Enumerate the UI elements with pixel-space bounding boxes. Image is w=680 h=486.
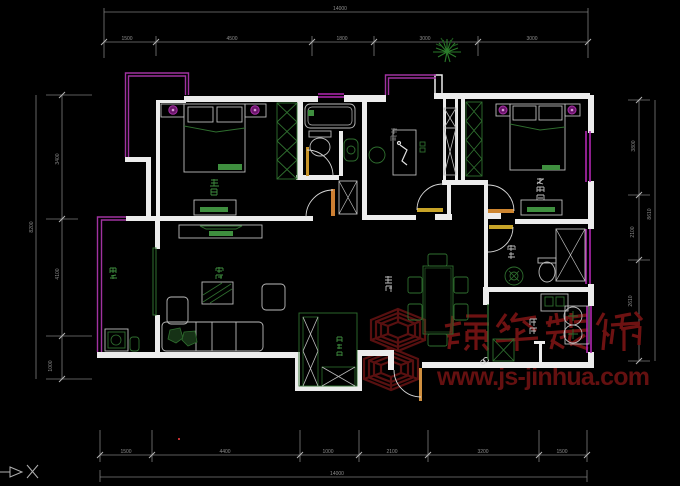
svg-text:14000: 14000 xyxy=(330,471,344,477)
svg-text:1500: 1500 xyxy=(120,449,131,455)
svg-text:2100: 2100 xyxy=(630,226,636,237)
svg-text:3000: 3000 xyxy=(419,36,430,42)
svg-text:2610: 2610 xyxy=(628,295,634,306)
svg-text:3000: 3000 xyxy=(526,36,537,42)
svg-text:4100: 4100 xyxy=(55,268,61,279)
svg-text:3800: 3800 xyxy=(631,140,637,151)
svg-text:2100: 2100 xyxy=(386,449,397,455)
svg-text:3400: 3400 xyxy=(55,153,61,164)
svg-text:8610: 8610 xyxy=(647,208,653,219)
svg-text:1500: 1500 xyxy=(121,36,132,42)
svg-text:3200: 3200 xyxy=(477,449,488,455)
svg-text:4500: 4500 xyxy=(226,36,237,42)
svg-text:8200: 8200 xyxy=(29,221,35,232)
svg-text:1000: 1000 xyxy=(48,360,54,371)
svg-text:1500: 1500 xyxy=(556,449,567,455)
svg-text:1000: 1000 xyxy=(322,449,333,455)
svg-text:1800: 1800 xyxy=(336,36,347,42)
svg-text:14000: 14000 xyxy=(333,6,347,12)
svg-text:4400: 4400 xyxy=(219,449,230,455)
